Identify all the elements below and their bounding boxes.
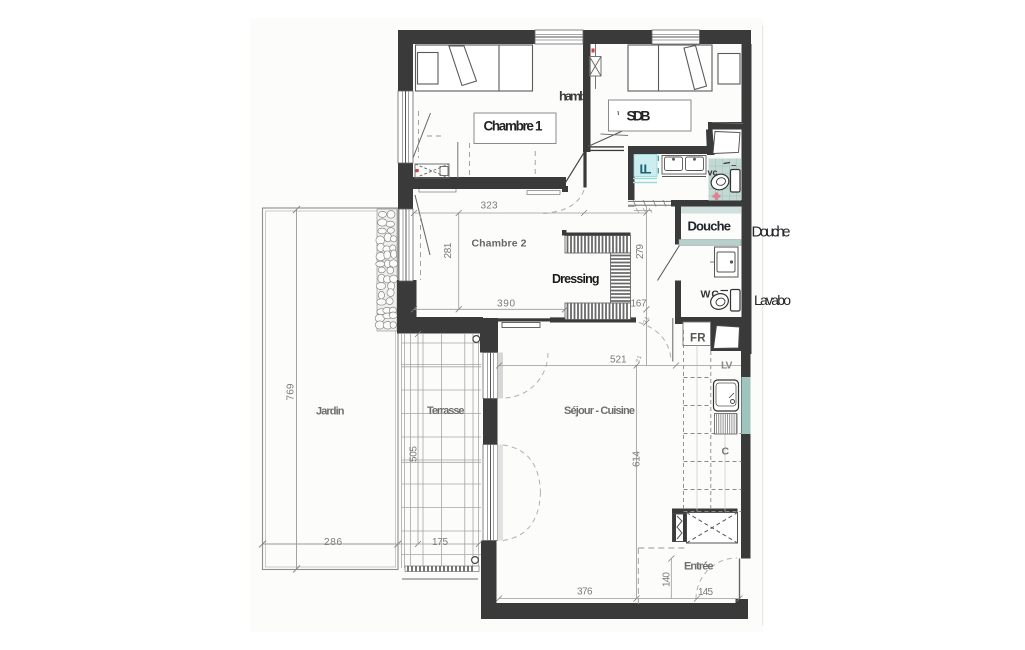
svg-text:286: 286	[324, 537, 342, 548]
svg-text:C: C	[722, 446, 730, 458]
svg-text:SDB: SDB	[627, 108, 651, 124]
svg-text:390: 390	[497, 299, 515, 310]
svg-text:Chambre 1: Chambre 1	[484, 119, 543, 134]
svg-text:281: 281	[443, 242, 454, 258]
svg-text:323: 323	[481, 201, 498, 212]
svg-text:vc: vc	[708, 168, 718, 178]
svg-text:Séjour - Cuisine: Séjour - Cuisine	[564, 405, 635, 417]
svg-text:505: 505	[409, 446, 420, 462]
svg-text:Lavabo: Lavabo	[754, 292, 791, 308]
svg-text:140: 140	[662, 572, 673, 587]
svg-text:175: 175	[432, 537, 448, 548]
svg-text:376: 376	[577, 587, 593, 598]
svg-text:279: 279	[635, 244, 646, 259]
svg-text:145: 145	[698, 587, 713, 598]
svg-text:Douche: Douche	[688, 219, 732, 234]
svg-text:614: 614	[632, 451, 643, 467]
svg-text:Douche: Douche	[752, 224, 791, 241]
svg-text:FR: FR	[690, 333, 706, 345]
svg-text:167: 167	[631, 299, 647, 310]
svg-text:769: 769	[286, 383, 297, 400]
svg-text:Terrasse: Terrasse	[427, 405, 465, 417]
svg-text:LV: LV	[721, 360, 733, 372]
svg-text:Chambre 2: Chambre 2	[472, 238, 527, 250]
svg-text:Dressing: Dressing	[552, 272, 600, 286]
svg-text:Entrée: Entrée	[684, 561, 714, 573]
svg-text:Jardin: Jardin	[316, 406, 345, 418]
svg-text:LL: LL	[640, 162, 652, 177]
svg-text:521: 521	[610, 355, 627, 366]
